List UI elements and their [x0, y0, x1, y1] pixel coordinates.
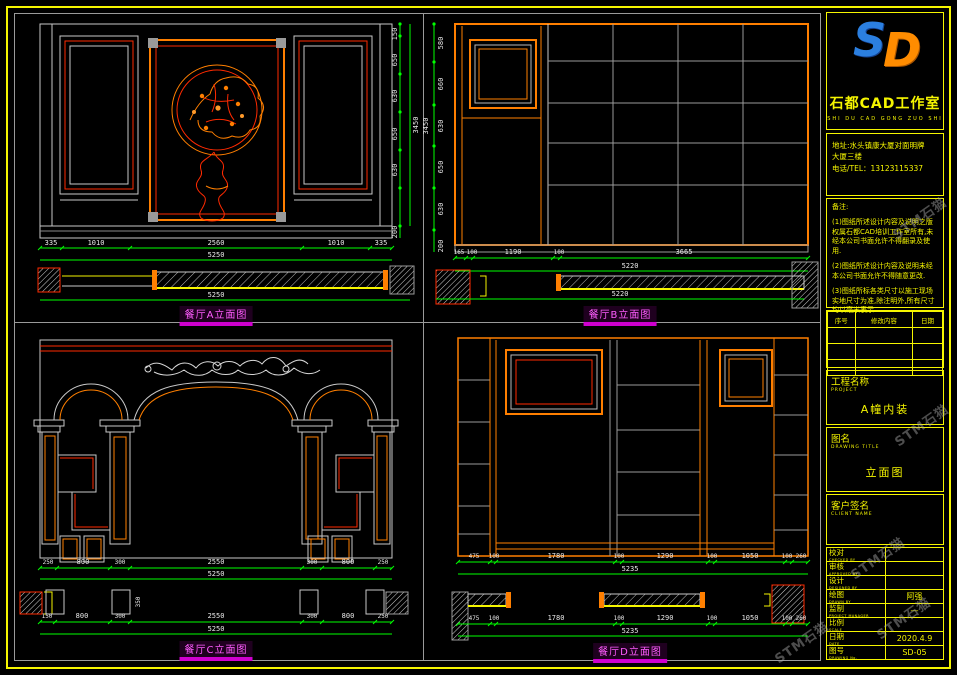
row-value: — — [886, 604, 943, 617]
revision-header-no: 序号 — [828, 312, 856, 328]
svg-text:630: 630 — [437, 203, 445, 216]
svg-text:350: 350 — [135, 596, 142, 607]
svg-text:260: 260 — [796, 553, 807, 560]
drawing-a-dimensions: 335 1010 2560 1010 335 5250 150 650 630 … — [38, 22, 420, 260]
row-value: SD-05 — [886, 646, 943, 659]
svg-text:2560: 2560 — [208, 239, 225, 247]
svg-text:800: 800 — [342, 612, 355, 620]
row-label: 图号 — [829, 647, 885, 655]
svg-text:3450: 3450 — [412, 117, 420, 134]
svg-text:100: 100 — [489, 553, 500, 560]
studio-pinyin: SHI DU CAD GONG ZUO SHI — [827, 116, 943, 122]
svg-text:650: 650 — [437, 161, 445, 174]
logo-letter-d: D — [883, 23, 921, 77]
row-label: 监制 — [829, 605, 885, 613]
notes-title: 备注: — [832, 203, 938, 212]
address-box: 地址:水头镇康大厦对面明牌 大厦三楼 电话/TEL：13123115337 — [826, 133, 944, 196]
svg-text:2550: 2550 — [208, 558, 225, 566]
svg-text:100: 100 — [614, 553, 625, 560]
svg-text:1290: 1290 — [657, 614, 674, 622]
row-label-en: APPROVED BY — [829, 571, 879, 576]
drawing-d-elevation — [458, 338, 808, 556]
client-label-en: CLIENT NAME — [827, 512, 943, 517]
svg-text:250: 250 — [43, 559, 54, 566]
svg-text:200: 200 — [437, 240, 445, 253]
cad-sheet: 335 1010 2560 1010 335 5250 150 650 630 … — [0, 0, 957, 675]
svg-text:1010: 1010 — [88, 239, 105, 247]
row-value: 2020.4.9 — [886, 632, 943, 645]
svg-text:100: 100 — [707, 615, 718, 622]
row-label-en: SCALE — [829, 627, 879, 632]
project-value: A幢内装 — [827, 401, 943, 417]
svg-text:300: 300 — [307, 613, 318, 620]
medallion-ornament-icon — [172, 65, 264, 221]
note-1: (1)图纸所述设计内容及说明之版权属石都CAD培训工作室所有,未经本公司书面允许… — [832, 218, 938, 256]
row-label: 校对 — [829, 549, 885, 557]
drawing-title-label: 图名 — [827, 428, 943, 445]
row-value — [886, 576, 943, 589]
svg-text:5220: 5220 — [612, 290, 629, 298]
signoff-row-date: 日期DATE 2020.4.9 — [827, 632, 943, 646]
address-line1: 地址:水头镇康大厦对面明牌 — [832, 140, 938, 151]
signoff-row-manager: 监制PROJECT MANAGER — — [827, 604, 943, 618]
svg-text:800: 800 — [342, 558, 355, 566]
svg-text:250: 250 — [378, 613, 389, 620]
drawing-title-box: 图名 DRAWING TITLE 立面图 — [826, 427, 944, 492]
logo-box: S D 石都CAD工作室 SHI DU CAD GONG ZUO SHI — [826, 12, 944, 130]
svg-text:630: 630 — [391, 90, 399, 103]
project-box: 工程名称 PROJECT A幢内装 — [826, 370, 944, 425]
drawing-c-dimensions: 250 800 300 2550 300 800 250 5250 — [38, 558, 394, 579]
svg-text:5250: 5250 — [208, 291, 225, 299]
svg-text:3665: 3665 — [676, 248, 693, 256]
row-value — [886, 562, 943, 575]
row-label-en: DRAWN BY — [829, 599, 879, 604]
row-value: 阿强 — [886, 590, 943, 603]
signoff-row-drawn: 绘图DRAWN BY 阿强 — [827, 590, 943, 604]
signoff-row-approved: 审核APPROVED BY — [827, 562, 943, 576]
svg-text:5235: 5235 — [622, 565, 639, 573]
revision-header-content: 修改内容 — [855, 312, 913, 328]
row-value — [886, 618, 943, 631]
caption-drawing-b: 餐厅B立面图 — [584, 306, 657, 326]
drawing-a-plan-strip: 5250 — [38, 266, 414, 300]
row-label: 设计 — [829, 577, 885, 585]
project-label: 工程名称 — [827, 371, 943, 388]
svg-text:100: 100 — [467, 249, 478, 256]
caption-drawing-d: 餐厅D立面图 — [593, 643, 667, 663]
svg-text:475: 475 — [469, 553, 480, 560]
svg-text:150: 150 — [391, 28, 399, 41]
svg-text:100: 100 — [707, 553, 718, 560]
svg-text:1190: 1190 — [505, 248, 522, 256]
logo-letter-s: S — [853, 13, 886, 67]
svg-text:5250: 5250 — [208, 570, 225, 578]
drawing-a-elevation — [40, 24, 392, 238]
svg-text:200: 200 — [391, 226, 399, 239]
title-panel: S D 石都CAD工作室 SHI DU CAD GONG ZUO SHI 地址:… — [826, 0, 948, 675]
svg-text:165: 165 — [454, 249, 465, 256]
phone: 电话/TEL：13123115337 — [832, 163, 938, 174]
svg-text:650: 650 — [391, 128, 399, 141]
svg-text:1050: 1050 — [742, 614, 759, 622]
row-label-en: PROJECT MANAGER — [829, 613, 879, 618]
note-2: (2)图纸所述设计内容及说明未经本公司书面允许不得随意更改. — [832, 262, 938, 281]
svg-text:100: 100 — [489, 615, 500, 622]
svg-text:630: 630 — [437, 120, 445, 133]
svg-text:1780: 1780 — [548, 552, 565, 560]
svg-text:335: 335 — [45, 239, 58, 247]
svg-text:650: 650 — [391, 54, 399, 67]
svg-text:475: 475 — [469, 615, 480, 622]
svg-text:335: 335 — [375, 239, 388, 247]
client-box: 客户签名 CLIENT NAME — [826, 494, 944, 545]
studio-name: 石都CAD工作室 — [827, 93, 943, 113]
svg-text:1050: 1050 — [742, 552, 759, 560]
drawing-title-value: 立面图 — [827, 464, 943, 480]
svg-text:1290: 1290 — [657, 552, 674, 560]
project-label-en: PROJECT — [827, 388, 943, 393]
cad-linework: 335 1010 2560 1010 335 5250 150 650 630 … — [0, 0, 957, 675]
revision-table: 序号 修改内容 日期 — [826, 310, 944, 368]
signoff-row-checked: 校对CHECKED BY — [827, 548, 943, 562]
svg-text:100: 100 — [782, 615, 793, 622]
svg-text:300: 300 — [307, 559, 318, 566]
row-label-en: CHECKED BY — [829, 557, 879, 562]
svg-text:630: 630 — [391, 164, 399, 177]
svg-text:5235: 5235 — [622, 627, 639, 635]
caption-drawing-c: 餐厅C立面图 — [180, 641, 253, 661]
svg-text:1780: 1780 — [548, 614, 565, 622]
row-label-en: DATE — [829, 641, 879, 646]
scroll-ornament-icon — [145, 358, 320, 376]
drawing-b-dimensions: 165 100 1190 100 3665 5220 580 660 630 6… — [422, 22, 810, 271]
svg-text:800: 800 — [76, 612, 89, 620]
svg-text:5250: 5250 — [208, 251, 225, 259]
caption-drawing-a: 餐厅A立面图 — [180, 306, 253, 326]
svg-text:260: 260 — [796, 615, 807, 622]
drawing-b-elevation — [455, 24, 808, 252]
svg-text:660: 660 — [437, 78, 445, 91]
row-value — [886, 548, 943, 561]
address-line2: 大厦三楼 — [832, 151, 938, 162]
svg-text:300: 300 — [115, 559, 126, 566]
notes-box: 备注: (1)图纸所述设计内容及说明之版权属石都CAD培训工作室所有,未经本公司… — [826, 198, 944, 308]
row-label: 比例 — [829, 619, 885, 627]
svg-text:800: 800 — [77, 558, 90, 566]
signoff-row-scale: 比例SCALE — [827, 618, 943, 632]
svg-text:100: 100 — [614, 615, 625, 622]
svg-text:1010: 1010 — [328, 239, 345, 247]
signoff-row-designed: 设计DESIGNED BY — [827, 576, 943, 590]
signoff-row-number: 图号DRAWING No. SD-05 — [827, 646, 943, 659]
row-label: 日期 — [829, 633, 885, 641]
revision-row — [828, 344, 943, 360]
svg-text:580: 580 — [437, 37, 445, 50]
drawing-c-elevation — [34, 340, 398, 562]
svg-text:300: 300 — [115, 613, 126, 620]
svg-text:5250: 5250 — [208, 625, 225, 633]
studio-logo-icon: S D — [827, 13, 943, 75]
client-label: 客户签名 — [827, 495, 943, 512]
drawing-d-plan-strip: 475 100 1780 100 1290 100 1050 100 260 5… — [452, 585, 810, 640]
svg-text:250: 250 — [378, 559, 389, 566]
revision-row — [828, 328, 943, 344]
row-label-en: DRAWING No. — [829, 655, 879, 660]
svg-text:150: 150 — [42, 613, 53, 620]
row-label: 审核 — [829, 563, 885, 571]
svg-text:5220: 5220 — [622, 262, 639, 270]
svg-text:100: 100 — [782, 553, 793, 560]
svg-text:2550: 2550 — [208, 612, 225, 620]
revision-header-date: 日期 — [913, 312, 943, 328]
svg-text:100: 100 — [554, 249, 565, 256]
row-label: 绘图 — [829, 591, 885, 599]
svg-text:3450: 3450 — [422, 118, 430, 135]
drawing-title-label-en: DRAWING TITLE — [827, 445, 943, 450]
signoff-table: 校对CHECKED BY 审核APPROVED BY 设计DESIGNED BY… — [826, 547, 944, 660]
row-label-en: DESIGNED BY — [829, 585, 879, 590]
drawing-c-plan-strip: 350 150 800 300 2550 300 800 250 5250 — [20, 590, 408, 634]
